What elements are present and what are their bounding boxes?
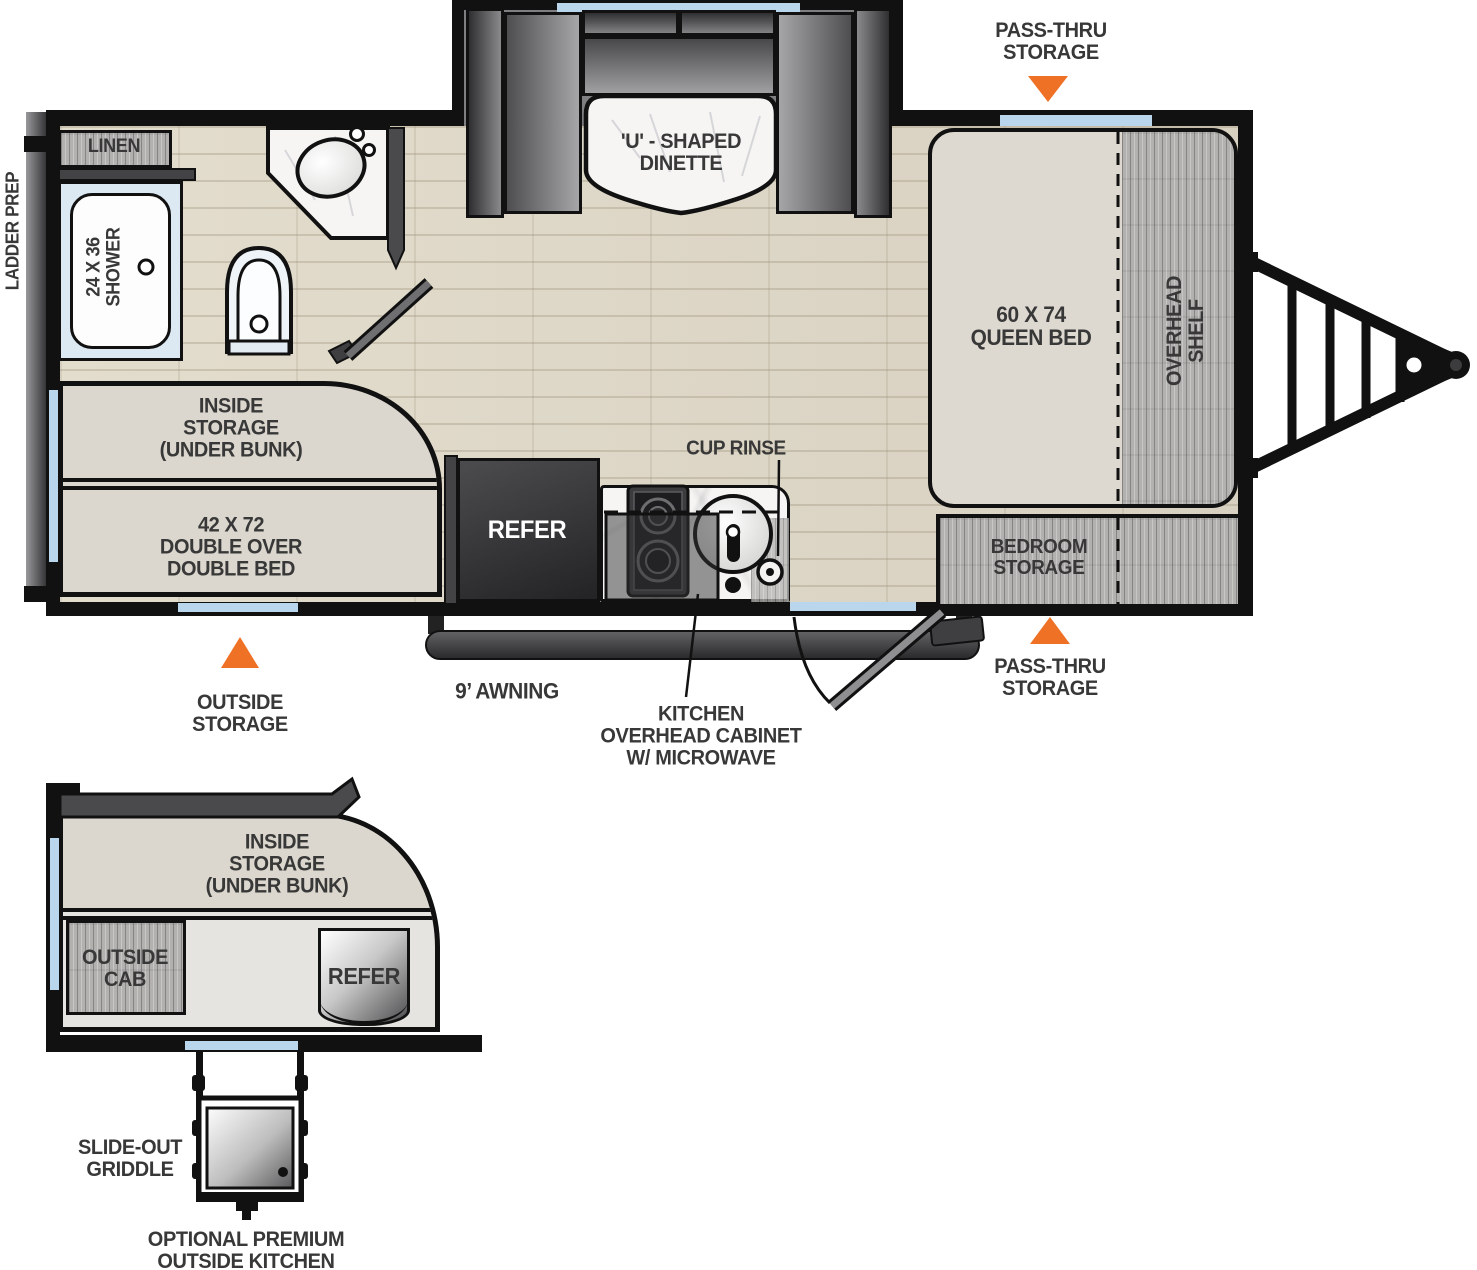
outside-cab-label: OUTSIDE CAB bbox=[82, 947, 168, 991]
linen-label: LINEN bbox=[88, 137, 140, 157]
label-layer: PASS-THRU STORAGE 'U' - SHAPED DINETTE L… bbox=[0, 0, 1477, 1270]
kitchen-overhead-label: KITCHEN OVERHEAD CABINET W/ MICROWAVE bbox=[600, 703, 801, 768]
dinette-label: 'U' - SHAPED DINETTE bbox=[621, 131, 741, 175]
refer-label: REFER bbox=[488, 517, 567, 543]
cup-rinse-label: CUP RINSE bbox=[686, 439, 786, 460]
slide-out-griddle-label: SLIDE-OUT GRIDDLE bbox=[78, 1137, 182, 1181]
shower-label: 24 X 36 SHOWER bbox=[84, 228, 124, 307]
queen-bed-label: 60 X 74 QUEEN BED bbox=[971, 304, 1092, 350]
detail-inside-storage-label: INSIDE STORAGE (UNDER BUNK) bbox=[206, 831, 349, 896]
pass-thru-top-label: PASS-THRU STORAGE bbox=[995, 20, 1106, 64]
bedroom-storage-label: BEDROOM STORAGE bbox=[991, 537, 1088, 579]
pass-thru-bottom-label: PASS-THRU STORAGE bbox=[994, 656, 1105, 700]
overhead-shelf-label: OVERHEAD SHELF bbox=[1164, 276, 1208, 386]
inside-storage-label: INSIDE STORAGE (UNDER BUNK) bbox=[160, 395, 303, 460]
detail-refer-label: REFER bbox=[328, 965, 400, 989]
outside-storage-label: OUTSIDE STORAGE bbox=[192, 692, 288, 736]
ladder-prep-label: LADDER PREP bbox=[4, 172, 23, 290]
awning-label: 9’ AWNING bbox=[455, 681, 559, 704]
optional-kitchen-caption: OPTIONAL PREMIUM OUTSIDE KITCHEN bbox=[148, 1229, 344, 1270]
double-bed-label: 42 X 72 DOUBLE OVER DOUBLE BED bbox=[160, 514, 302, 579]
floorplan-diagram: PASS-THRU STORAGE 'U' - SHAPED DINETTE L… bbox=[0, 0, 1477, 1270]
